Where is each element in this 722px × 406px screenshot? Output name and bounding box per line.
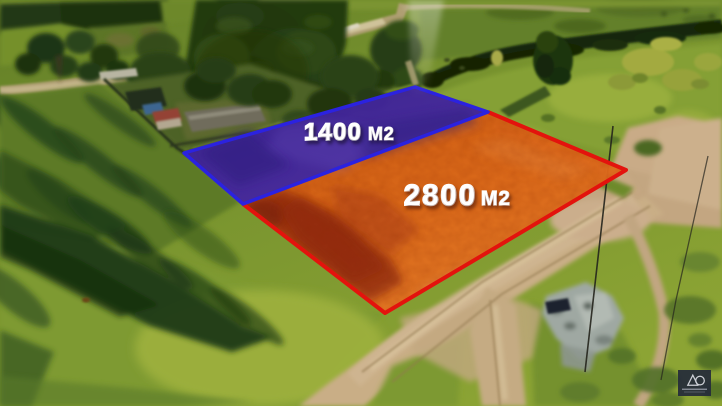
svg-text:M2: M2 [481, 188, 511, 210]
svg-text:2800: 2800 [404, 180, 477, 212]
svg-text:M2: M2 [368, 124, 395, 144]
svg-text:1400: 1400 [304, 119, 362, 146]
